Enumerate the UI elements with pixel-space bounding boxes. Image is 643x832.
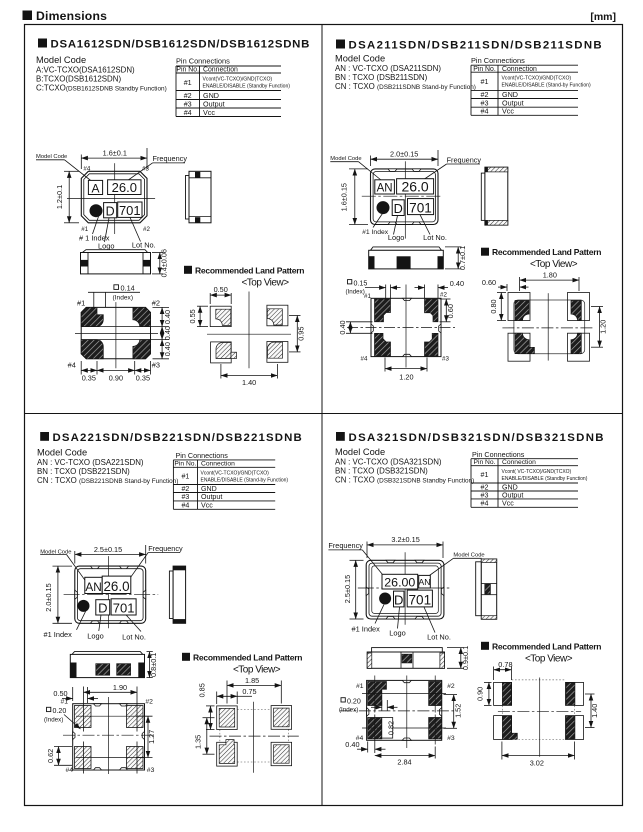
svg-text:1.85: 1.85	[245, 676, 259, 685]
svg-text:Pin Connections: Pin Connections	[471, 56, 525, 65]
svg-text:1.2±0.1: 1.2±0.1	[55, 185, 64, 209]
svg-text:Connection: Connection	[502, 459, 536, 466]
svg-text:Frequency: Frequency	[148, 544, 183, 553]
svg-text:DSA211SDN/DSB211SDN/DSB211SDNB: DSA211SDN/DSB211SDN/DSB211SDNB	[349, 40, 603, 52]
svg-text:#4: #4	[184, 108, 192, 117]
svg-text:Logo: Logo	[388, 233, 404, 242]
svg-text:#1: #1	[61, 698, 69, 705]
svg-text:AN: AN	[85, 580, 101, 594]
svg-text:#3: #3	[481, 491, 489, 499]
svg-text:Logo: Logo	[98, 241, 114, 250]
svg-text:DSA321SDN/DSB321SDN/DSB321SDNB: DSA321SDN/DSB321SDN/DSB321SDNB	[349, 432, 605, 444]
svg-text:701: 701	[408, 592, 431, 607]
svg-text:26.0: 26.0	[401, 179, 428, 195]
svg-text:Pin No.: Pin No.	[176, 67, 199, 74]
svg-text:Vcc: Vcc	[203, 108, 215, 117]
svg-text:#2: #2	[143, 226, 150, 233]
svg-text:2.5±0.15: 2.5±0.15	[343, 575, 352, 603]
svg-text:Recommended Land Pattern: Recommended Land Pattern	[492, 641, 601, 651]
svg-text:BN : TCXO (DSB221SDN): BN : TCXO (DSB221SDN)	[37, 467, 130, 476]
svg-text:#1: #1	[481, 77, 489, 86]
svg-text:Vcc: Vcc	[201, 502, 213, 510]
svg-text:#4: #4	[356, 735, 364, 742]
svg-text:#1 Index: #1 Index	[362, 229, 389, 236]
svg-text:BN : TCXO (DSB321SDN): BN : TCXO (DSB321SDN)	[335, 466, 428, 475]
svg-text:26.00: 26.00	[384, 575, 415, 589]
svg-text:701: 701	[113, 601, 135, 616]
svg-text:Dimensions: Dimensions	[36, 9, 107, 23]
svg-text:Model Code: Model Code	[36, 154, 67, 160]
svg-text:Frequency: Frequency	[328, 541, 363, 550]
svg-text:Vcont(VC-TCXO)/GND(TCXO): Vcont(VC-TCXO)/GND(TCXO)	[502, 76, 572, 82]
svg-text:Pin No.: Pin No.	[474, 459, 496, 466]
svg-text:Output: Output	[201, 493, 222, 501]
svg-text:0.75: 0.75	[242, 687, 256, 696]
svg-text:#2: #2	[145, 698, 153, 705]
svg-text:Pin Connections: Pin Connections	[472, 450, 525, 459]
svg-text:D: D	[106, 205, 115, 219]
svg-text:0.40: 0.40	[163, 342, 172, 356]
svg-text:Vcc: Vcc	[502, 500, 514, 508]
svg-text:Pin Connections: Pin Connections	[176, 57, 230, 66]
svg-text:Recommended Land Pattern: Recommended Land Pattern	[193, 652, 302, 662]
svg-text:ENABLE/DISABLE (Standby Functi: ENABLE/DISABLE (Standby Function)	[203, 83, 291, 89]
svg-text:#2: #2	[447, 683, 455, 690]
svg-text:0.20: 0.20	[347, 697, 361, 705]
svg-text:2.5±0.15: 2.5±0.15	[94, 545, 122, 554]
svg-text:1.90: 1.90	[113, 683, 127, 692]
svg-text:0.80: 0.80	[489, 299, 498, 313]
svg-text:#2: #2	[152, 299, 160, 308]
svg-text:D: D	[98, 601, 107, 616]
svg-text:#2: #2	[440, 291, 447, 298]
svg-text:#3: #3	[181, 493, 189, 501]
svg-text:701: 701	[409, 200, 432, 215]
svg-text:Lot No.: Lot No.	[122, 633, 146, 642]
svg-text:#1: #1	[184, 78, 192, 87]
svg-text:DSA1612SDN/DSB1612SDN/DSB1612S: DSA1612SDN/DSB1612SDN/DSB1612SDNB	[51, 39, 311, 51]
svg-text:Connection: Connection	[203, 67, 238, 74]
svg-text:701: 701	[119, 203, 141, 218]
svg-text:#2: #2	[481, 483, 489, 491]
svg-text:0.60: 0.60	[482, 278, 496, 287]
svg-text:<Top View>: <Top View>	[530, 259, 578, 270]
svg-text:0.85: 0.85	[197, 683, 206, 697]
svg-text:#1: #1	[481, 471, 489, 479]
svg-text:#1: #1	[181, 473, 189, 481]
svg-text:0.82: 0.82	[387, 721, 396, 735]
svg-text:Pin No.: Pin No.	[473, 66, 496, 73]
svg-text:GND: GND	[502, 483, 518, 491]
svg-text:#1 Index: #1 Index	[44, 630, 73, 639]
svg-text:Vcont(VC-TCXO)/GND(TCXO): Vcont(VC-TCXO)/GND(TCXO)	[201, 470, 270, 476]
svg-text:0.60: 0.60	[446, 304, 455, 318]
svg-text:#3: #3	[142, 165, 149, 172]
svg-text:#4: #4	[361, 355, 368, 362]
svg-text:0.35: 0.35	[82, 374, 96, 383]
svg-text:CN : TCXO (DSB211SDNB Stand-by: CN : TCXO (DSB211SDNB Stand-by Function)	[335, 82, 476, 91]
svg-text:26.0: 26.0	[103, 579, 129, 594]
svg-text:(Index): (Index)	[339, 707, 358, 714]
svg-text:1.6±0.1: 1.6±0.1	[103, 149, 127, 158]
svg-text:0.20: 0.20	[53, 707, 67, 715]
svg-text:Lot No.: Lot No.	[132, 241, 156, 250]
svg-text:#3: #3	[442, 355, 449, 362]
svg-text:ENABLE/DISABLE (Stand-by Func: ENABLE/DISABLE (Stand-by Function)	[201, 477, 289, 483]
svg-text:#4: #4	[481, 500, 489, 508]
svg-text:1.35: 1.35	[194, 735, 203, 749]
svg-text:<Top View>: <Top View>	[233, 665, 281, 676]
svg-text:Frequency: Frequency	[153, 154, 188, 163]
svg-text:Model Code: Model Code	[36, 55, 86, 65]
svg-text:(Index): (Index)	[113, 295, 134, 302]
svg-text:<Top View>: <Top View>	[241, 277, 289, 288]
svg-text:DSA221SDN/DSB221SDN/DSB221SDNB: DSA221SDN/DSB221SDN/DSB221SDNB	[53, 432, 303, 444]
svg-text:CN : TCXO (DSB221SDNB Stand-by: CN : TCXO (DSB221SDNB Stand-by Function)	[37, 476, 178, 485]
svg-text:A:VC-TCXO(DSA1612SDN): A:VC-TCXO(DSA1612SDN)	[36, 66, 135, 75]
svg-text:(Index): (Index)	[44, 716, 63, 723]
svg-text:Logo: Logo	[87, 631, 103, 640]
svg-text:Connection: Connection	[502, 66, 537, 73]
svg-text:0.55: 0.55	[188, 309, 197, 323]
svg-text:Model Code: Model Code	[330, 156, 361, 162]
svg-text:0.90: 0.90	[109, 374, 123, 383]
svg-text:#4: #4	[66, 767, 74, 774]
svg-text:A: A	[91, 182, 99, 196]
svg-text:Frequency: Frequency	[447, 155, 482, 164]
svg-text:Model Code: Model Code	[335, 54, 385, 64]
svg-text:0.9±0.1: 0.9±0.1	[461, 646, 470, 670]
svg-text:Vcont( VC-TCXO)/GND(TCXO): Vcont( VC-TCXO)/GND(TCXO)	[502, 469, 572, 475]
svg-text:0.95: 0.95	[297, 327, 306, 341]
svg-text:1.20: 1.20	[599, 320, 608, 334]
svg-text:BN : TCXO (DSB211SDN): BN : TCXO (DSB211SDN)	[335, 73, 428, 82]
svg-text:0.4±0.06: 0.4±0.06	[160, 249, 169, 277]
svg-text:#3: #3	[147, 767, 155, 774]
svg-text:#1: #1	[77, 299, 85, 308]
svg-text:1.52: 1.52	[454, 704, 463, 718]
svg-text:#4: #4	[481, 107, 489, 116]
svg-text:Pin Connections: Pin Connections	[176, 451, 229, 460]
svg-text:C:TCXO(DSB1612SDNB Standby Fun: C:TCXO(DSB1612SDNB Standby Function)	[36, 84, 167, 93]
svg-text:#4: #4	[68, 360, 76, 369]
svg-text:0.14: 0.14	[121, 283, 135, 292]
svg-text:#1: #1	[356, 683, 364, 690]
svg-text:Output: Output	[502, 491, 523, 499]
svg-text:Connection: Connection	[201, 461, 235, 468]
svg-text:AN : VC-TCXO (DSA211SDN): AN : VC-TCXO (DSA211SDN)	[335, 64, 441, 73]
svg-text:3.2±0.15: 3.2±0.15	[391, 535, 419, 544]
svg-text:<Top View>: <Top View>	[525, 653, 573, 664]
svg-text:#4: #4	[181, 502, 189, 510]
svg-text:Model Code: Model Code	[335, 447, 385, 457]
svg-text:0.15: 0.15	[354, 279, 368, 287]
svg-text:1.40: 1.40	[242, 378, 256, 387]
svg-text:AN: AN	[377, 183, 393, 195]
svg-text:1.80: 1.80	[543, 270, 557, 279]
svg-text:[mm]: [mm]	[590, 11, 616, 23]
svg-text:#4: #4	[83, 165, 90, 172]
svg-text:D: D	[394, 202, 403, 216]
svg-text:1.27: 1.27	[147, 730, 156, 744]
svg-text:Vcont(VC-TCXO)/GND(TCXO): Vcont(VC-TCXO)/GND(TCXO)	[203, 76, 273, 82]
svg-text:2.84: 2.84	[397, 757, 411, 766]
svg-text:0.8±0.1: 0.8±0.1	[149, 653, 158, 677]
svg-text:0.62: 0.62	[46, 749, 55, 763]
svg-text:0.40: 0.40	[163, 326, 172, 340]
svg-text:#1: #1	[364, 293, 371, 300]
svg-text:GND: GND	[201, 485, 217, 493]
svg-text:0.78: 0.78	[498, 660, 512, 669]
svg-text:#3: #3	[152, 360, 160, 369]
svg-text:1.20: 1.20	[399, 372, 413, 381]
svg-text:#1 Index: #1 Index	[352, 625, 381, 634]
svg-text:Model Code: Model Code	[453, 553, 484, 559]
svg-text:CN : TCXO (DSB321SDNB Standby: CN : TCXO (DSB321SDNB Standby Function)	[335, 475, 474, 484]
svg-text:Recommended Land Pattern: Recommended Land Pattern	[492, 247, 601, 257]
svg-text:0.90: 0.90	[475, 687, 484, 701]
svg-text:B:TCXO(DSB1612SDN): B:TCXO(DSB1612SDN)	[36, 75, 121, 84]
svg-text:ENABLE/DISABLE (Standby Funct: ENABLE/DISABLE (Standby Function)	[502, 476, 588, 482]
svg-text:3.02: 3.02	[530, 758, 544, 767]
svg-text:Vcc: Vcc	[502, 107, 514, 116]
svg-text:26.0: 26.0	[112, 180, 137, 195]
svg-text:2.0±0.15: 2.0±0.15	[390, 149, 418, 158]
svg-text:Model Code: Model Code	[37, 448, 87, 458]
svg-text:0.7±0.1: 0.7±0.1	[458, 246, 467, 270]
svg-text:#2: #2	[181, 485, 189, 493]
svg-text:D: D	[394, 592, 403, 607]
svg-text:0.35: 0.35	[136, 374, 150, 383]
svg-text:2.0±0.15: 2.0±0.15	[44, 583, 53, 611]
svg-text:0.50: 0.50	[53, 689, 67, 698]
svg-text:Recommended Land Pattern: Recommended Land Pattern	[195, 265, 304, 275]
svg-text:0.50: 0.50	[214, 285, 228, 294]
svg-text:AN : VC-TCXO (DSA221SDN): AN : VC-TCXO (DSA221SDN)	[37, 458, 144, 467]
svg-text:1.6±0.15: 1.6±0.15	[339, 183, 348, 211]
svg-text:0.40: 0.40	[338, 320, 347, 334]
svg-text:Lot No.: Lot No.	[427, 633, 451, 642]
svg-text:Pin No.: Pin No.	[174, 461, 196, 468]
svg-text:0.40: 0.40	[163, 310, 172, 324]
svg-text:1.40: 1.40	[590, 704, 599, 718]
svg-text:#3: #3	[447, 735, 455, 742]
svg-text:ENABLE/DISABLE (Stand-by Func: ENABLE/DISABLE (Stand-by Function)	[502, 83, 591, 89]
svg-text:Lot No.: Lot No.	[423, 233, 447, 242]
svg-text:#1: #1	[81, 226, 88, 233]
svg-text:AN: AN	[419, 577, 431, 587]
svg-text:(Index): (Index)	[346, 288, 365, 295]
svg-text:AN : VC-TCXO (DSA321SDN): AN : VC-TCXO (DSA321SDN)	[335, 457, 442, 466]
svg-text:Logo: Logo	[389, 629, 405, 638]
svg-text:0.40: 0.40	[450, 279, 464, 288]
